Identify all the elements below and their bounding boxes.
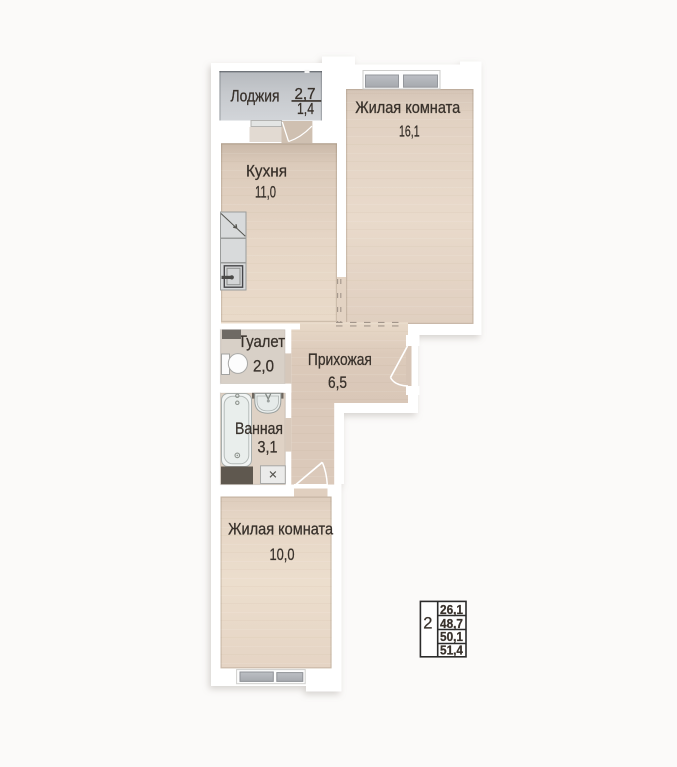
svg-text:2,0: 2,0 <box>253 358 274 376</box>
svg-text:26,1: 26,1 <box>440 602 463 617</box>
svg-text:Туалет: Туалет <box>238 333 285 351</box>
svg-text:2: 2 <box>423 615 432 633</box>
svg-text:Ванная: Ванная <box>235 420 283 438</box>
svg-text:Лоджия: Лоджия <box>231 88 280 106</box>
svg-text:3,1: 3,1 <box>258 439 278 457</box>
svg-text:51,4: 51,4 <box>440 643 464 658</box>
svg-text:11,0: 11,0 <box>255 183 276 201</box>
svg-text:Прихожая: Прихожая <box>308 351 372 369</box>
svg-text:6,5: 6,5 <box>328 374 347 392</box>
svg-text:Жилая комната: Жилая комната <box>228 521 334 539</box>
svg-text:Жилая комната: Жилая комната <box>355 99 461 117</box>
svg-text:16,1: 16,1 <box>399 123 420 140</box>
svg-text:1,4: 1,4 <box>297 101 314 118</box>
svg-text:10,0: 10,0 <box>270 546 295 564</box>
svg-text:Кухня: Кухня <box>246 163 287 181</box>
